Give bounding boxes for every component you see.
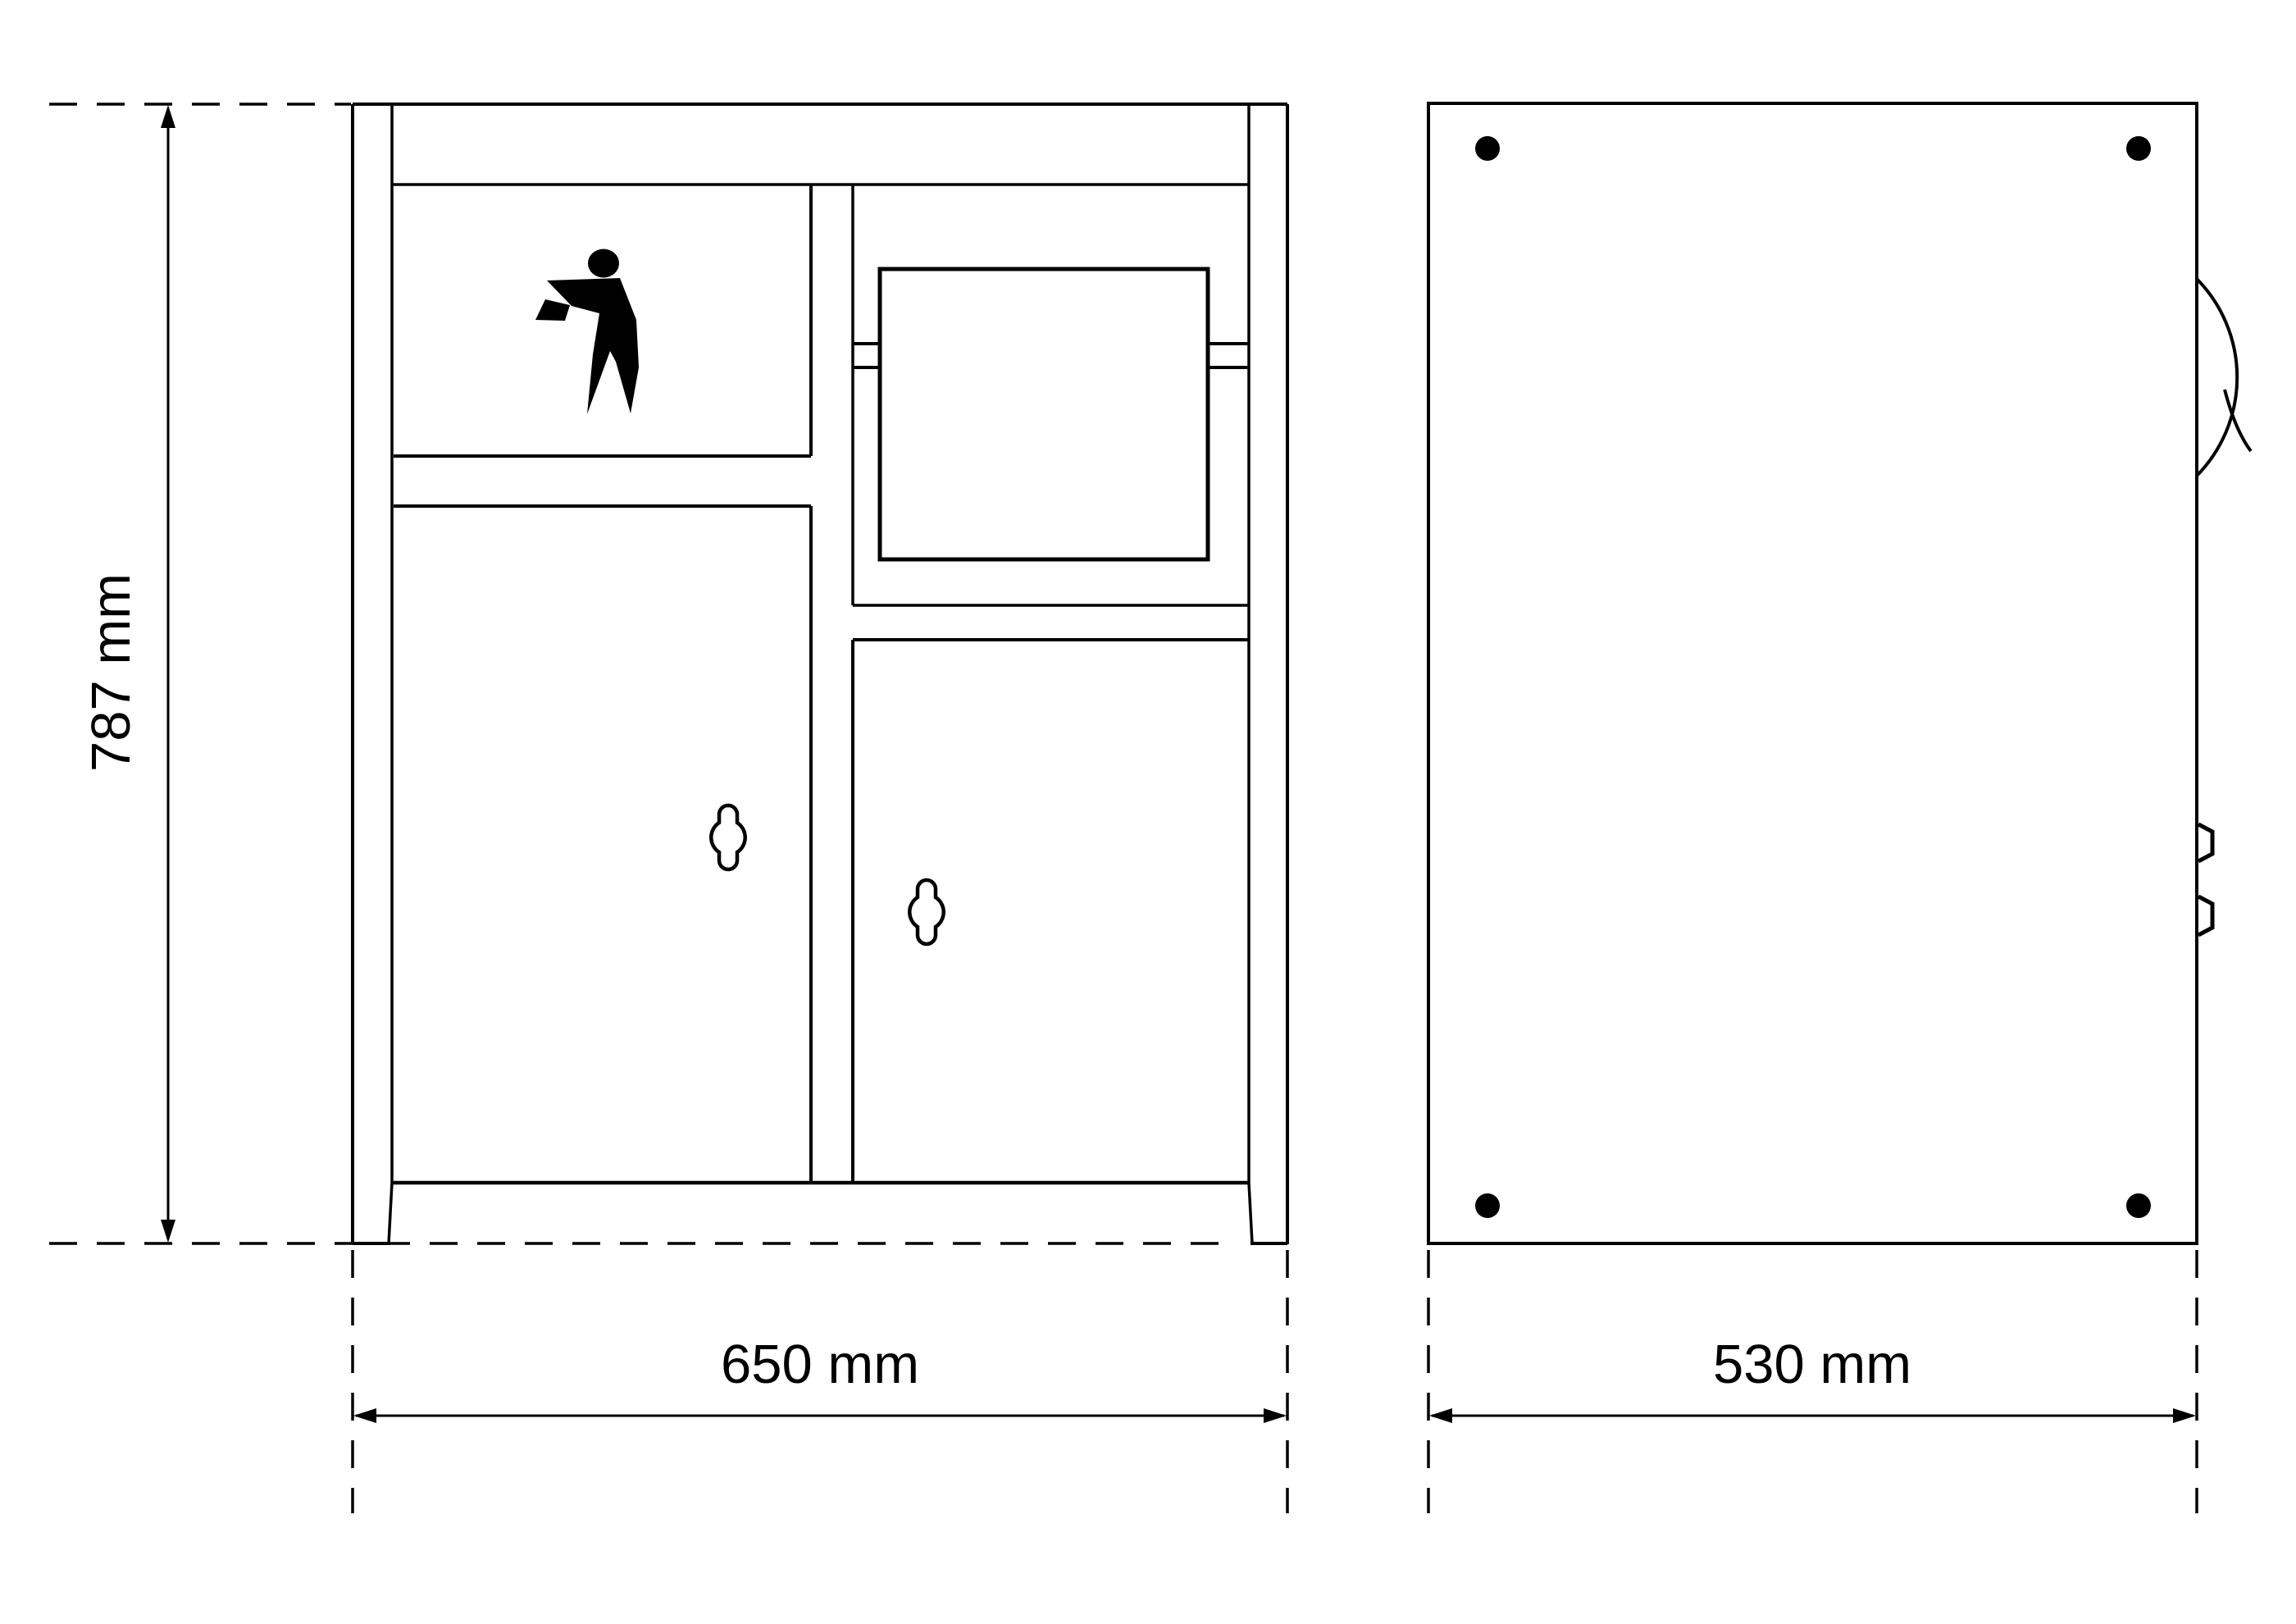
- tidyman-head: [588, 249, 619, 278]
- arrow-down-icon: [161, 1220, 175, 1243]
- front-view-drawing: 787 mm: [49, 104, 1287, 1513]
- technical-drawing-canvas: 787 mm: [0, 0, 2296, 1624]
- right-door-keyhole-icon: [909, 880, 943, 944]
- latch-tab-upper: [2198, 824, 2212, 861]
- bolt-dot-top-left: [1475, 136, 1500, 161]
- arrow-left-icon: [1429, 1408, 1452, 1423]
- left-door-keyhole-icon: [711, 805, 745, 869]
- push-flap: [880, 269, 1208, 559]
- left-door: [394, 506, 811, 1183]
- side-view-drawing: 530 mm: [1428, 103, 2251, 1513]
- right-door: [853, 640, 1249, 1183]
- arrow-left-icon: [353, 1408, 376, 1423]
- flap-swing-hook: [2225, 390, 2251, 451]
- tidyman-litter-box: [535, 299, 570, 321]
- flap-swing-arc: [2197, 279, 2237, 476]
- left-foot-inner-edge: [389, 1183, 392, 1243]
- tidyman-litter-icon: [535, 249, 639, 415]
- right-foot-inner-edge: [1249, 1183, 1252, 1243]
- depth-dimension-label: 530 mm: [1713, 1334, 1911, 1395]
- bolt-dots: [1475, 136, 2151, 1218]
- depth-dimension: 530 mm: [1428, 1250, 2197, 1513]
- width-dimension: 650 mm: [353, 1250, 1287, 1513]
- waste-bin-dimension-drawing: 787 mm: [0, 0, 2296, 1624]
- tidyman-body: [547, 278, 639, 414]
- signage-panel: [394, 185, 811, 456]
- arrow-right-icon: [2173, 1408, 2196, 1423]
- bolt-dot-bottom-left: [1475, 1193, 1500, 1218]
- height-dimension-label: 787 mm: [80, 573, 142, 772]
- side-panel-outline: [1428, 103, 2197, 1243]
- flap-section: [853, 185, 1249, 605]
- cabinet-outline: [353, 104, 1287, 1244]
- height-dimension: 787 mm: [80, 105, 175, 1243]
- latch-tab-lower: [2198, 896, 2212, 935]
- arrow-right-icon: [1264, 1408, 1287, 1423]
- bolt-dot-top-right: [2126, 136, 2151, 161]
- width-dimension-label: 650 mm: [721, 1334, 919, 1395]
- bolt-dot-bottom-right: [2126, 1193, 2151, 1218]
- arrow-up-icon: [161, 105, 175, 128]
